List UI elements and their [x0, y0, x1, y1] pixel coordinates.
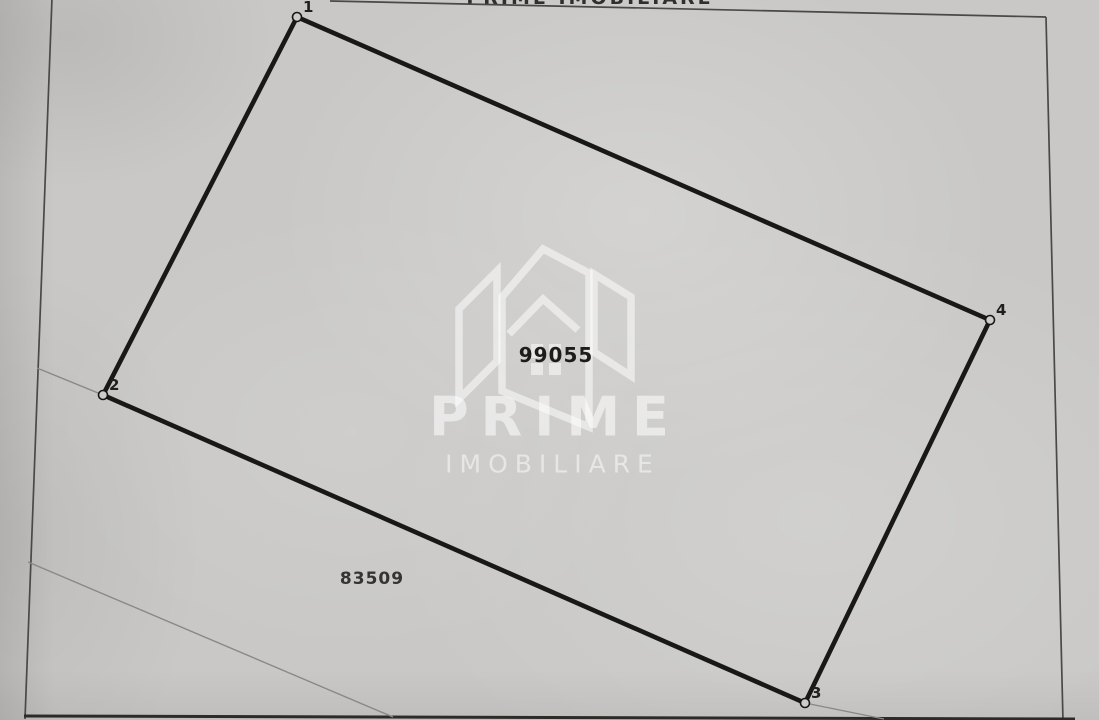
neighbor-boundary-line-left	[37, 368, 103, 395]
vertex-label-2: 2	[109, 378, 119, 393]
logo-right-panel	[594, 274, 631, 376]
vertex-marker-3	[801, 699, 810, 708]
watermark-brand-text: PRIME	[417, 386, 681, 449]
vertex-marker-2	[99, 391, 108, 400]
scanned-cadastral-plan: PRIME IMOBILIARE PRIME	[0, 0, 1099, 720]
neighbor-boundary-line-bottom-left	[28, 562, 393, 717]
vertex-label-1: 1	[303, 0, 313, 15]
parcel-number-83509: 83509	[340, 569, 404, 589]
watermark-subtitle-text: IMOBILIARE	[438, 450, 660, 479]
frame-right-border	[1046, 17, 1063, 720]
neighbor-boundary-line-bottom-right	[805, 703, 884, 719]
parcel-number-99055: 99055	[519, 343, 594, 367]
frame-left-border	[25, 0, 52, 719]
vertex-label-4: 4	[996, 303, 1006, 318]
vertex-marker-4	[986, 316, 995, 325]
frame-bottom-border	[24, 716, 1075, 719]
vertex-marker-1	[293, 13, 302, 22]
logo-inner-roof-chevron	[509, 299, 578, 334]
vertex-label-3: 3	[811, 686, 821, 701]
frame-top-border	[330, 1, 1046, 17]
logo-left-panel	[459, 271, 497, 399]
